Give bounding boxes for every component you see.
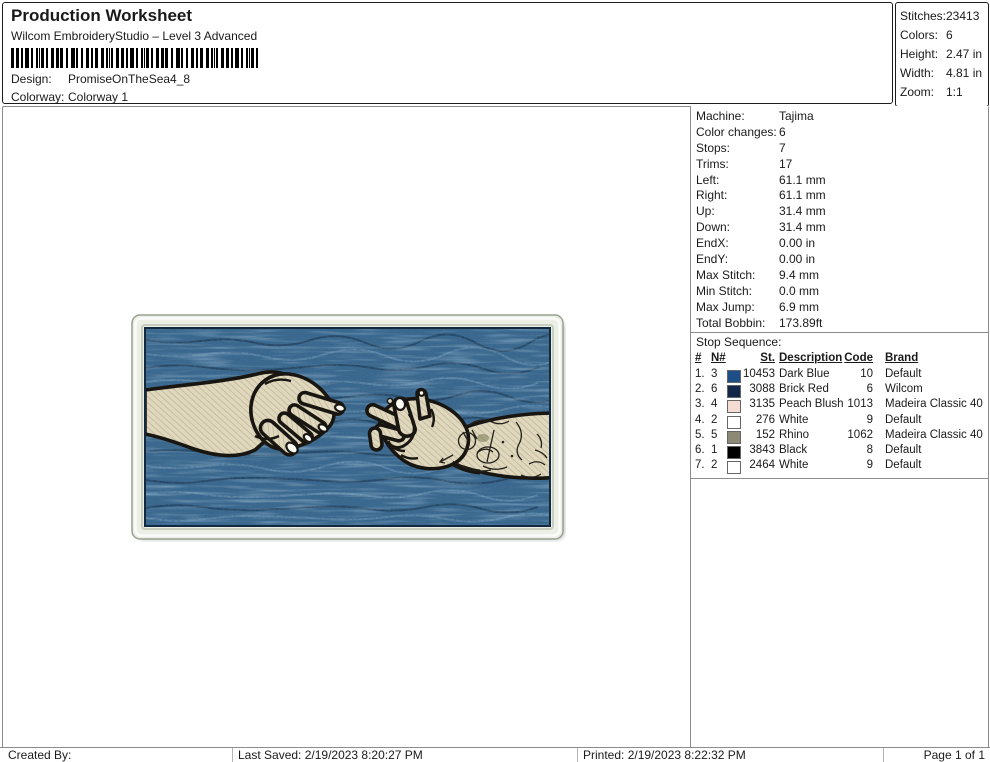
thread-code: 9: [831, 414, 873, 426]
thread-brand: Madeira Classic 40: [885, 398, 983, 410]
summary-row: Colors:6: [896, 25, 988, 44]
thread-description: Brick Red: [779, 383, 829, 395]
info-label: Down:: [696, 220, 779, 234]
info-value: 0.00 in: [779, 236, 815, 250]
stop-row: 1.310453Dark Blue10Default: [691, 368, 988, 383]
info-row: Color changes:6: [691, 124, 988, 140]
row-num: 6.: [695, 444, 709, 456]
divider: [691, 332, 988, 333]
info-value: 61.1 mm: [779, 173, 826, 187]
info-label: Min Stitch:: [696, 284, 779, 298]
info-row: Min Stitch:0.0 mm: [691, 283, 988, 299]
row-num: 2.: [695, 383, 709, 395]
info-label: Color changes:: [696, 125, 779, 139]
page-title: Production Worksheet: [11, 6, 192, 26]
stitch-count: 10453: [739, 368, 775, 380]
stitch-count: 3088: [739, 383, 775, 395]
row-num: 3.: [695, 398, 709, 410]
stitch-count: 3843: [739, 444, 775, 456]
design-preview: [131, 314, 566, 542]
info-row: Total Bobbin:173.89ft: [691, 315, 988, 331]
needle-num: 2: [711, 414, 725, 426]
info-value: 61.1 mm: [779, 188, 826, 202]
needle-num: 4: [711, 398, 725, 410]
info-label: EndX:: [696, 236, 779, 250]
info-value: 31.4 mm: [779, 220, 826, 234]
embroidery-patch: [131, 314, 566, 542]
info-label: Up:: [696, 204, 779, 218]
col-num: #: [695, 352, 709, 364]
info-row: Max Stitch:9.4 mm: [691, 267, 988, 283]
colorway-name: Colorway 1: [68, 90, 128, 104]
machine-info-panel: Machine:Tajima Color changes:6 Stops:7 T…: [690, 106, 988, 749]
info-row: Right:61.1 mm: [691, 187, 988, 203]
info-row: EndX:0.00 in: [691, 235, 988, 251]
info-label: Right:: [696, 188, 779, 202]
page-number: Page 1 of 1: [883, 748, 989, 762]
design-barcode: [11, 48, 259, 68]
summary-value: 6: [946, 28, 953, 42]
info-row: Left:61.1 mm: [691, 172, 988, 188]
footer-bar: Created By: Last Saved: 2/19/2023 8:20:2…: [0, 747, 990, 762]
thread-description: Dark Blue: [779, 368, 830, 380]
info-value: 0.0 mm: [779, 284, 819, 298]
summary-label: Height:: [900, 47, 946, 61]
design-label: Design:: [11, 72, 68, 86]
info-label: Total Bobbin:: [696, 316, 779, 330]
info-value: 7: [779, 141, 786, 155]
info-value: 173.89ft: [779, 316, 822, 330]
stop-row: 4.2276White9Default: [691, 414, 988, 429]
summary-label: Zoom:: [900, 85, 946, 99]
row-num: 7.: [695, 459, 709, 471]
app-subtitle: Wilcom EmbroideryStudio – Level 3 Advanc…: [11, 29, 257, 43]
thread-code: 1013: [831, 398, 873, 410]
thread-brand: Madeira Classic 40: [885, 429, 983, 441]
stop-table-header: # N# St. Description Code Brand: [691, 352, 988, 367]
thread-code: 10: [831, 368, 873, 380]
info-value: 17: [779, 157, 792, 171]
stop-sequence-title: Stop Sequence:: [696, 335, 781, 349]
needle-num: 2: [711, 459, 725, 471]
info-label: Left:: [696, 173, 779, 187]
info-row: Max Jump:6.9 mm: [691, 299, 988, 315]
thread-code: 6: [831, 383, 873, 395]
thread-description: White: [779, 459, 808, 471]
summary-row: Width:4.81 in: [896, 63, 988, 82]
needle-num: 6: [711, 383, 725, 395]
info-label: Machine:: [696, 109, 779, 123]
thread-description: White: [779, 414, 808, 426]
thread-code: 1062: [831, 429, 873, 441]
summary-value: 1:1: [946, 85, 963, 99]
summary-box: Stitches:23413 Colors:6 Height:2.47 in W…: [895, 2, 989, 107]
info-label: Trims:: [696, 157, 779, 171]
col-code: Code: [831, 352, 873, 364]
summary-label: Stitches:: [900, 9, 946, 23]
needle-num: 3: [711, 368, 725, 380]
divider: [691, 478, 988, 479]
info-row: Trims:17: [691, 156, 988, 172]
thread-brand: Default: [885, 414, 921, 426]
summary-row: Height:2.47 in: [896, 44, 988, 63]
thread-code: 9: [831, 459, 873, 471]
info-value: 0.00 in: [779, 252, 815, 266]
stitch-count: 3135: [739, 398, 775, 410]
stitch-count: 276: [739, 414, 775, 426]
thread-brand: Default: [885, 368, 921, 380]
stop-row: 6.13843Black8Default: [691, 444, 988, 459]
stitch-count: 2464: [739, 459, 775, 471]
thread-description: Rhino: [779, 429, 809, 441]
row-num: 5.: [695, 429, 709, 441]
summary-value: 4.81 in: [946, 66, 982, 80]
thread-description: Black: [779, 444, 807, 456]
summary-value: 23413: [946, 9, 979, 23]
needle-num: 5: [711, 429, 725, 441]
info-label: Max Stitch:: [696, 268, 779, 282]
last-saved: Last Saved: 2/19/2023 8:20:27 PM: [232, 748, 583, 762]
thread-brand: Default: [885, 459, 921, 471]
info-value: 6: [779, 125, 786, 139]
info-label: EndY:: [696, 252, 779, 266]
stop-row: 7.22464White9Default: [691, 459, 988, 474]
info-value: 31.4 mm: [779, 204, 826, 218]
header-box: Production Worksheet Wilcom EmbroiderySt…: [2, 2, 893, 104]
summary-row: Stitches:23413: [896, 6, 988, 25]
stitch-count: 152: [739, 429, 775, 441]
design-row: Design: PromiseOnTheSea4_8: [11, 72, 190, 86]
info-label: Stops:: [696, 141, 779, 155]
row-num: 4.: [695, 414, 709, 426]
production-worksheet-page: Production Worksheet Wilcom EmbroiderySt…: [0, 0, 990, 762]
thread-brand: Wilcom: [885, 383, 923, 395]
row-num: 1.: [695, 368, 709, 380]
stop-row: 3.43135Peach Blush1013Madeira Classic 40: [691, 398, 988, 413]
col-brand: Brand: [885, 352, 918, 364]
col-needle: N#: [711, 352, 725, 364]
info-row: Down:31.4 mm: [691, 219, 988, 235]
stop-row: 2.63088Brick Red6Wilcom: [691, 383, 988, 398]
thread-brand: Default: [885, 444, 921, 456]
summary-label: Width:: [900, 66, 946, 80]
printed: Printed: 2/19/2023 8:22:32 PM: [577, 748, 889, 762]
thread-code: 8: [831, 444, 873, 456]
created-by: Created By:: [2, 748, 238, 762]
info-label: Max Jump:: [696, 300, 779, 314]
col-stitches: St.: [739, 352, 775, 364]
info-value: Tajima: [779, 109, 814, 123]
info-value: 6.9 mm: [779, 300, 819, 314]
info-row: EndY:0.00 in: [691, 251, 988, 267]
needle-num: 1: [711, 444, 725, 456]
summary-label: Colors:: [900, 28, 946, 42]
colorway-label: Colorway:: [11, 90, 68, 104]
info-row: Machine:Tajima: [691, 108, 988, 124]
info-row: Stops:7: [691, 140, 988, 156]
stop-row: 5.5152Rhino1062Madeira Classic 40: [691, 429, 988, 444]
info-row: Up:31.4 mm: [691, 203, 988, 219]
colorway-row: Colorway: Colorway 1: [11, 90, 128, 104]
design-name: PromiseOnTheSea4_8: [68, 72, 190, 86]
summary-value: 2.47 in: [946, 47, 982, 61]
summary-row: Zoom:1:1: [896, 82, 988, 101]
info-value: 9.4 mm: [779, 268, 819, 282]
